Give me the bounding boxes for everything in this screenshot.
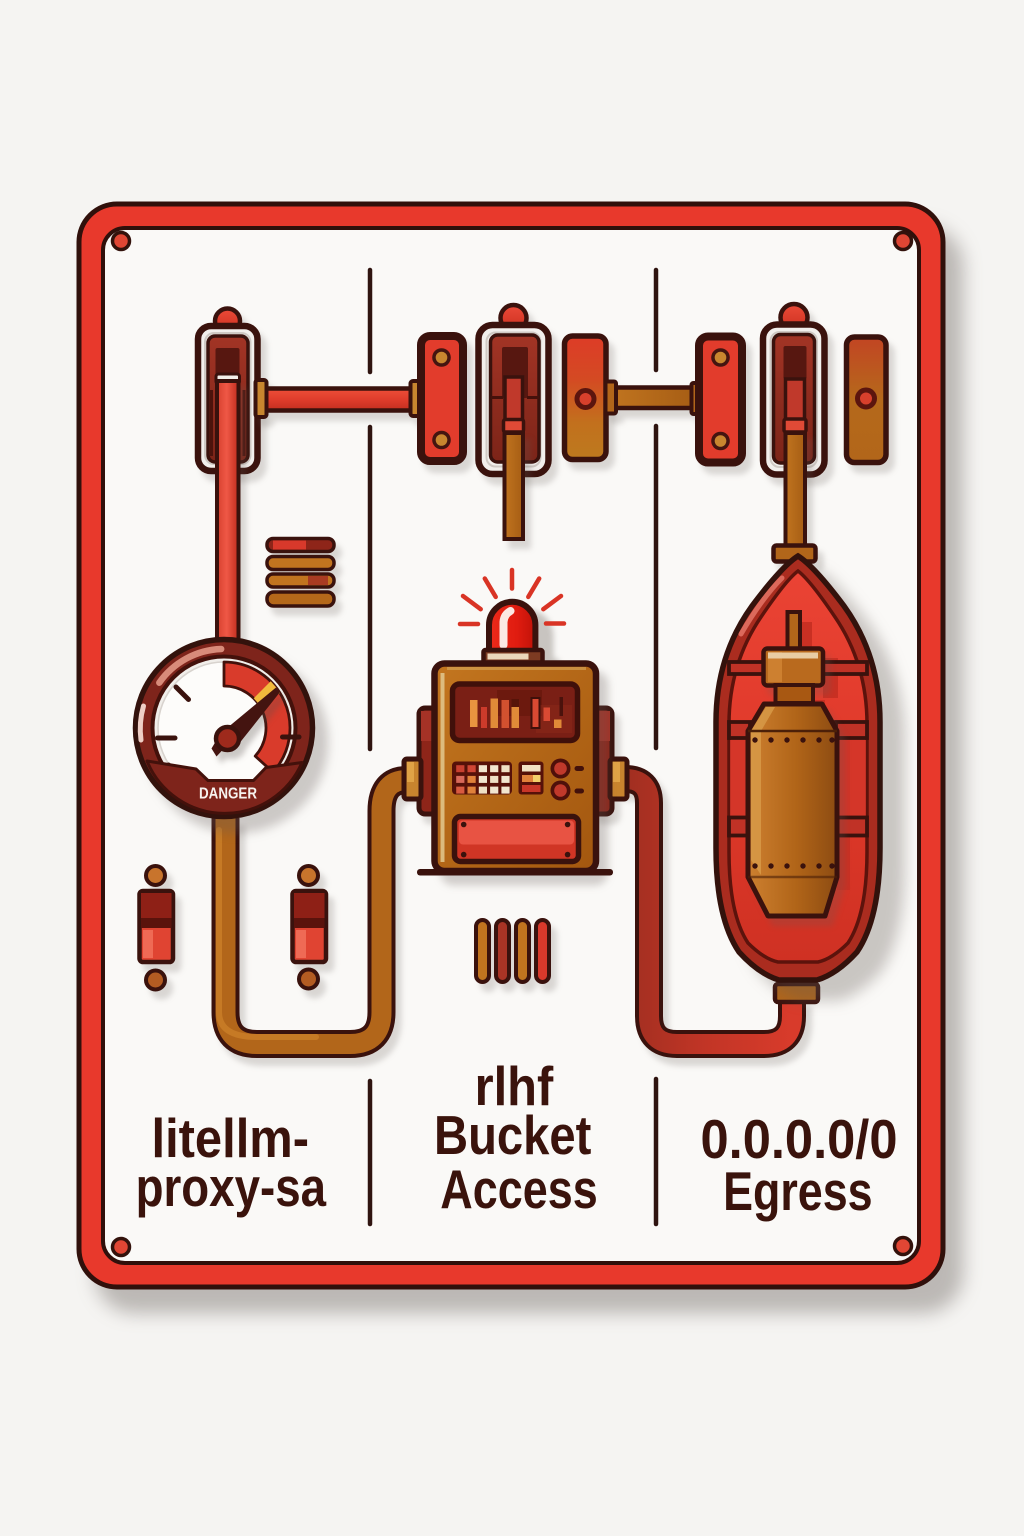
svg-text:Bucket: Bucket — [434, 1104, 591, 1166]
svg-text:DANGER: DANGER — [199, 786, 257, 803]
svg-text:proxy-sa: proxy-sa — [136, 1156, 327, 1218]
svg-text:Egress: Egress — [723, 1160, 873, 1222]
svg-text:Access: Access — [440, 1158, 597, 1220]
